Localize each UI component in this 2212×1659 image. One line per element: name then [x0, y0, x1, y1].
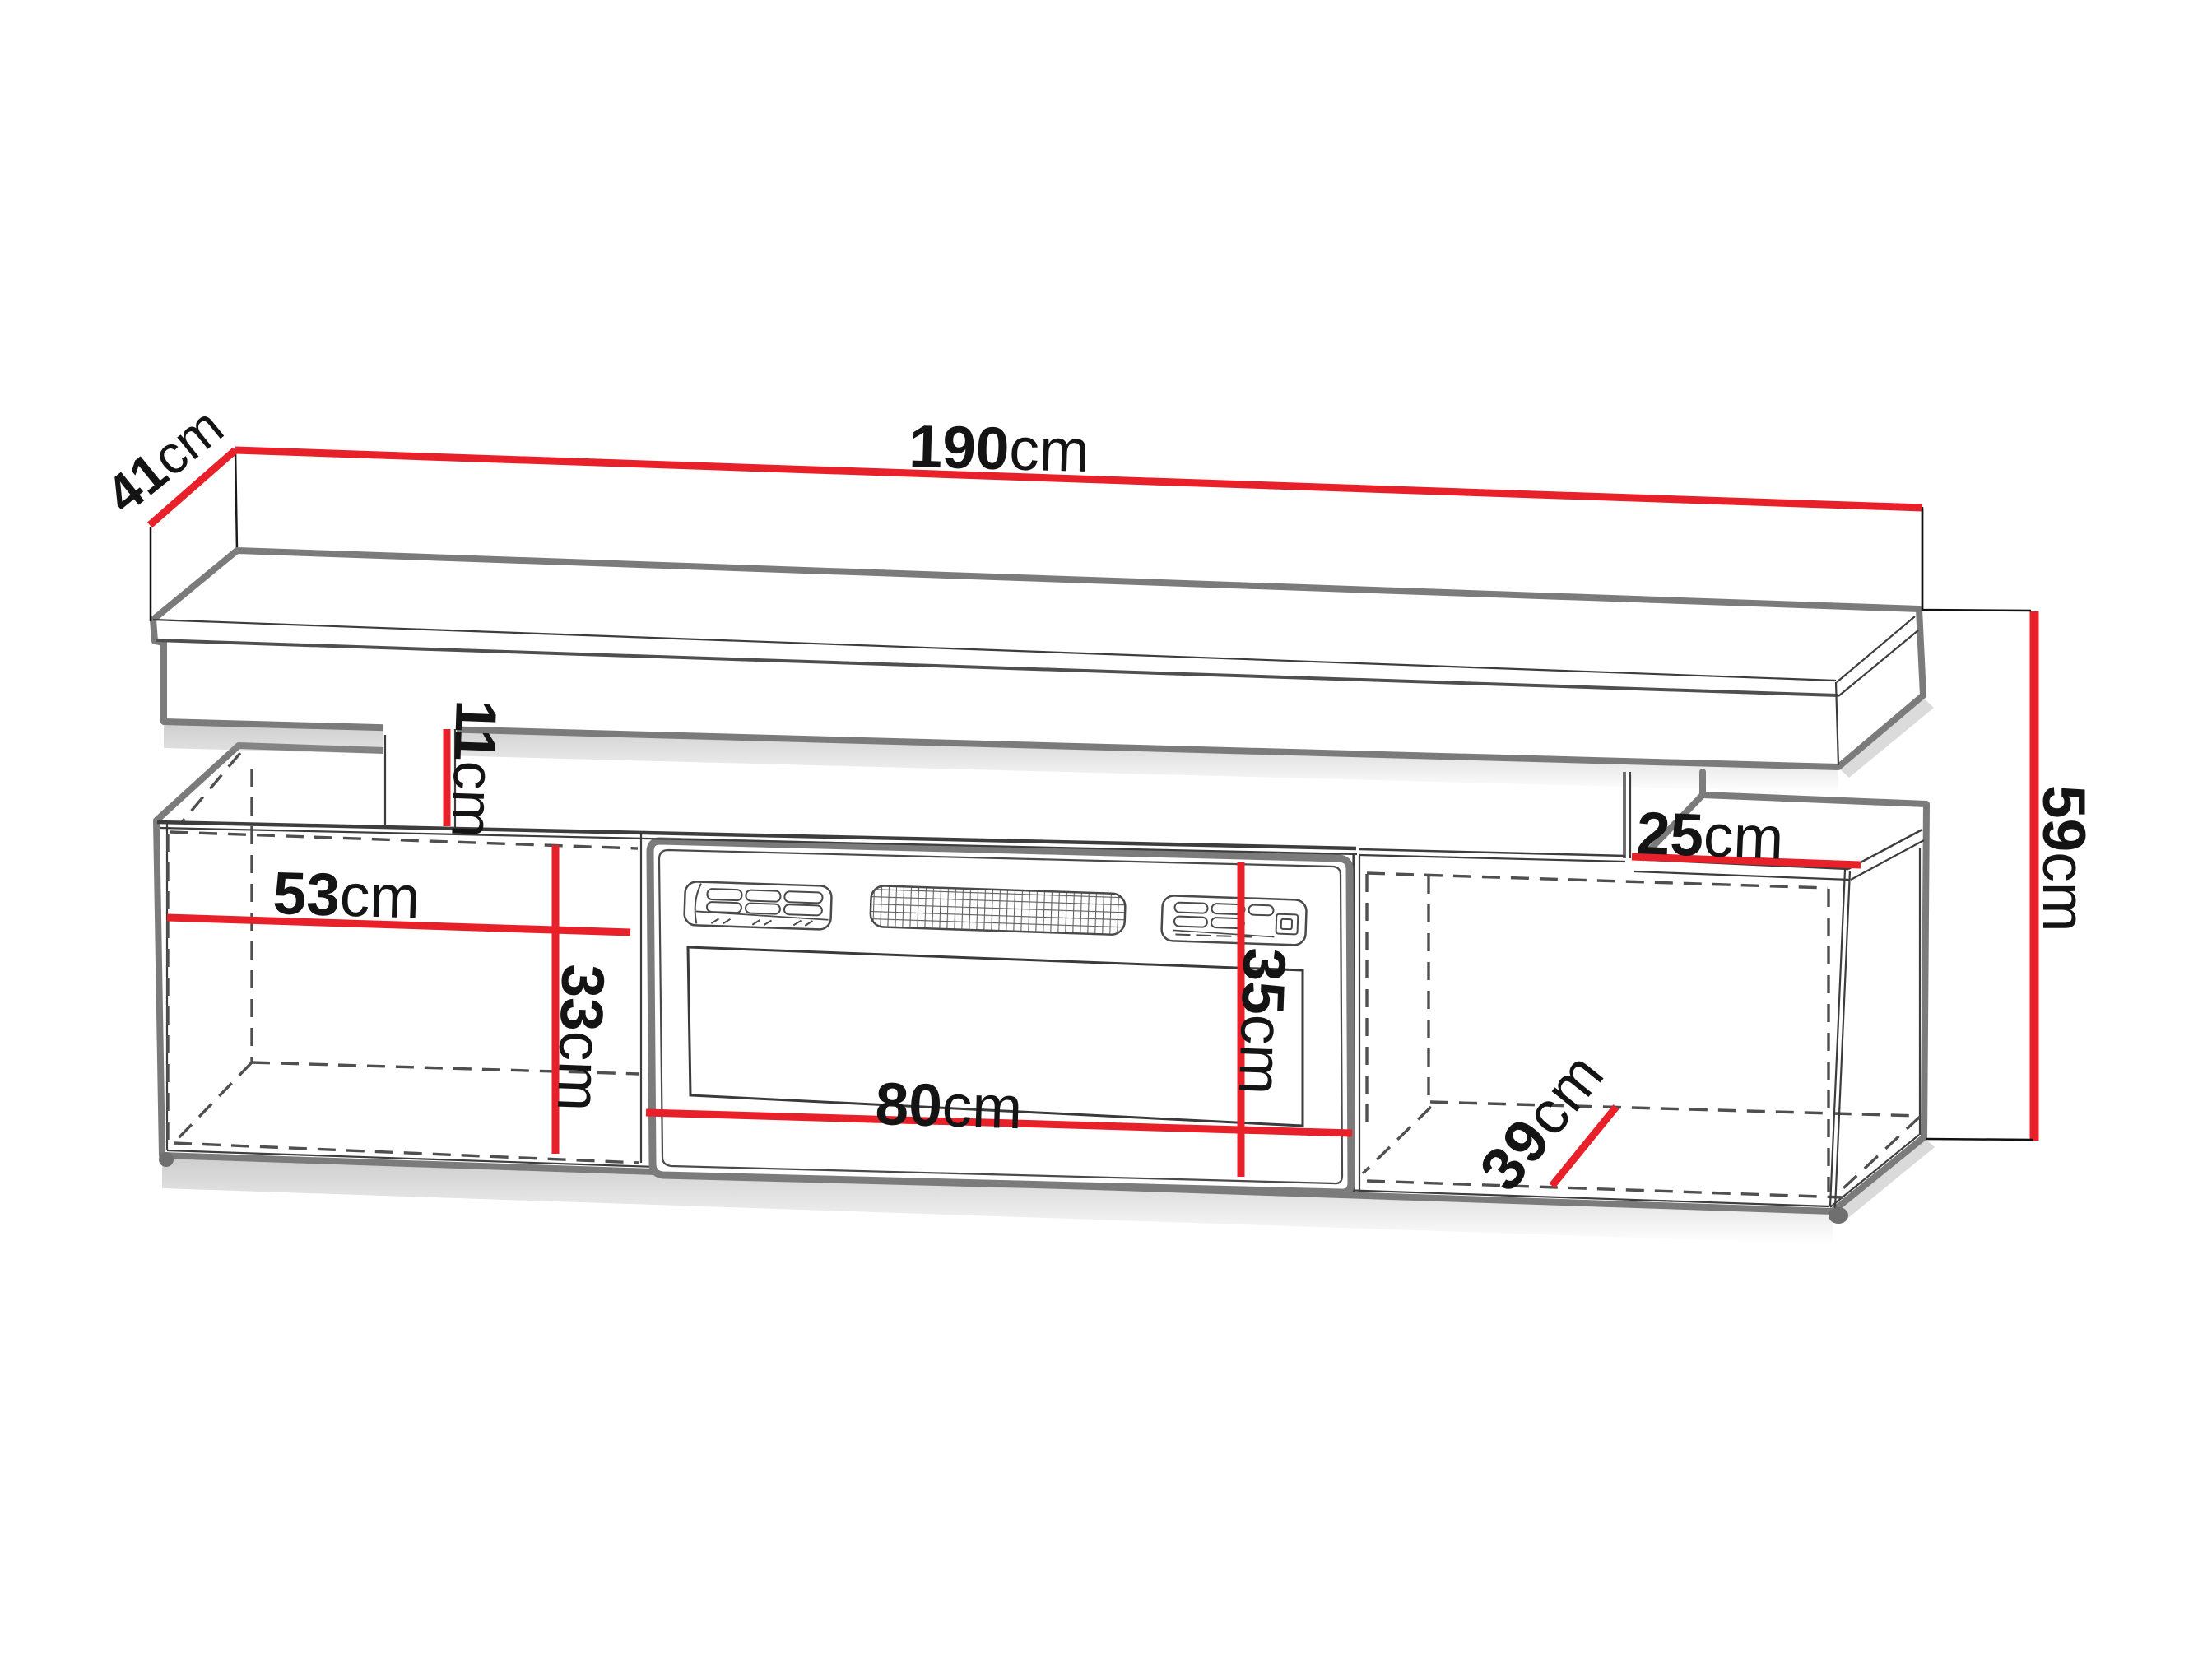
svg-text:33cm: 33cm: [545, 963, 616, 1112]
svg-text:80cm: 80cm: [875, 1071, 1024, 1141]
svg-text:25cm: 25cm: [1635, 800, 1784, 872]
svg-text:59cm: 59cm: [2030, 785, 2097, 932]
svg-text:190cm: 190cm: [908, 413, 1090, 485]
svg-text:11cm: 11cm: [439, 699, 509, 839]
svg-text:35cm: 35cm: [1226, 946, 1298, 1095]
svg-text:53cm: 53cm: [272, 860, 421, 932]
